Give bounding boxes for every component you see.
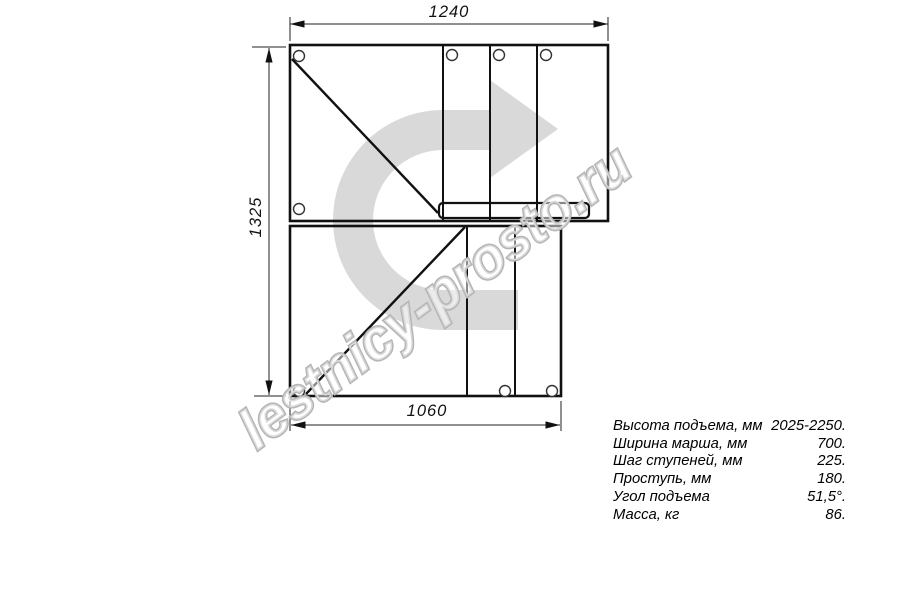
spec-table: Высота подъема, мм 2025-2250. Ширина мар… xyxy=(613,418,846,524)
spec-row: Масса, кг 86. xyxy=(613,507,846,525)
mounting-hole xyxy=(294,204,305,215)
spec-row: Ширина марша, мм 700. xyxy=(613,436,846,454)
dimension-label-top-width: 1240 xyxy=(409,3,489,22)
spec-label: Высота подъема, мм xyxy=(613,418,763,436)
mounting-hole xyxy=(294,51,305,62)
spec-value: 700. xyxy=(817,436,846,454)
spec-label: Ширина марша, мм xyxy=(613,436,747,454)
spec-label: Шаг ступеней, мм xyxy=(613,453,743,471)
spec-label: Масса, кг xyxy=(613,507,679,525)
spec-value: 86. xyxy=(825,507,846,525)
dimension-label-left-height: 1325 xyxy=(245,177,267,257)
spec-row: Угол подъема 51,5°. xyxy=(613,489,846,507)
spec-row: Проступь, мм 180. xyxy=(613,471,846,489)
mounting-hole xyxy=(494,50,505,61)
spec-row: Шаг ступеней, мм 225. xyxy=(613,453,846,471)
mounting-hole xyxy=(541,50,552,61)
mounting-hole xyxy=(500,386,511,397)
spec-label: Проступь, мм xyxy=(613,471,711,489)
staircase-drawing-page: lestnicy-prosto.ru 1240 1325 1060 Высота… xyxy=(0,0,900,600)
spec-value: 51,5°. xyxy=(807,489,846,507)
spec-value: 180. xyxy=(817,471,846,489)
spec-value: 2025-2250. xyxy=(771,418,846,436)
mounting-hole xyxy=(547,386,558,397)
dimension-label-bottom-width: 1060 xyxy=(387,402,467,421)
spec-label: Угол подъема xyxy=(613,489,710,507)
mounting-hole xyxy=(447,50,458,61)
spec-row: Высота подъема, мм 2025-2250. xyxy=(613,418,846,436)
spec-value: 225. xyxy=(817,453,846,471)
